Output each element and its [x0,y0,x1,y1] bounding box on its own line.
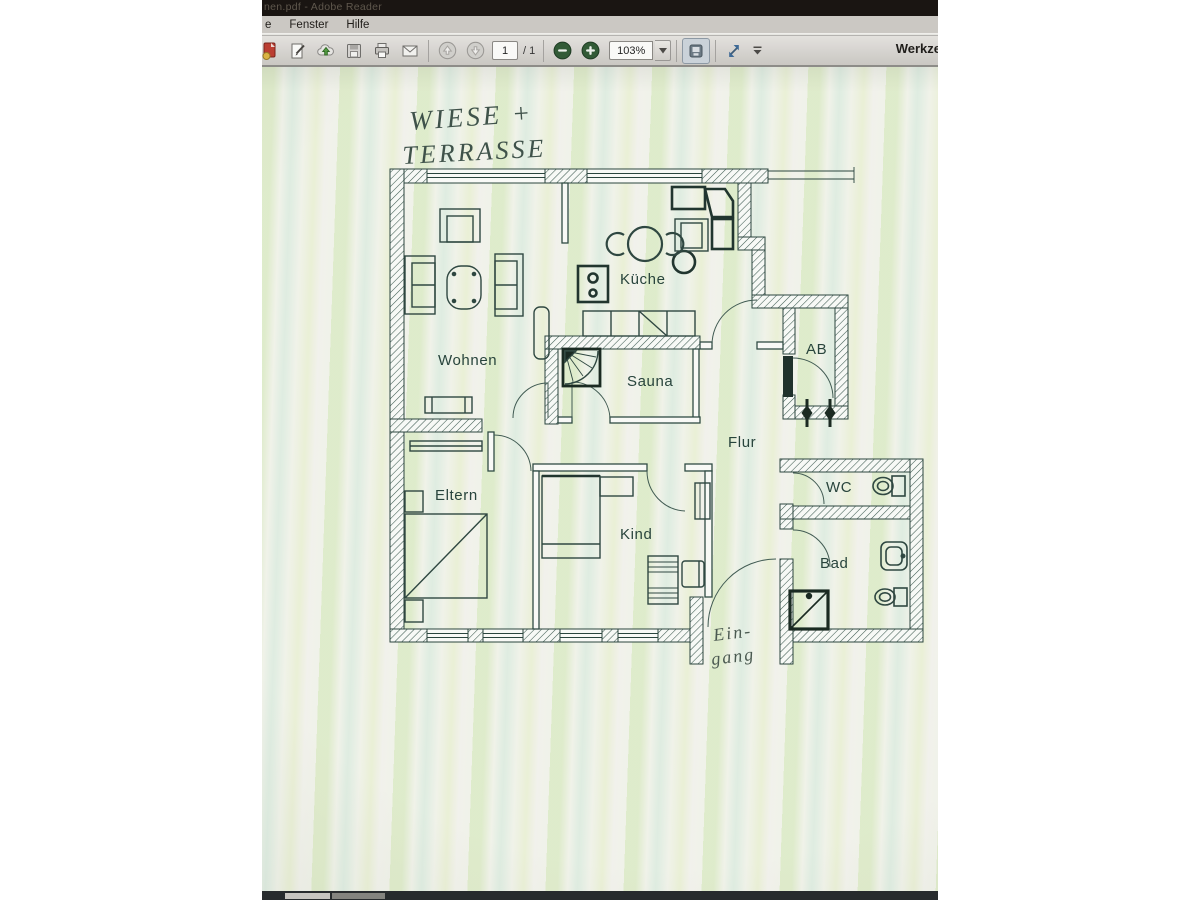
page-display-mode-icon [686,41,706,61]
page-number-input[interactable]: 1 [492,41,518,60]
crib [648,556,678,604]
coffee-table [447,266,481,309]
chair [682,561,704,587]
sign-document-icon [288,41,308,61]
ab-door-arc [793,358,833,398]
label-wohnen: Wohnen [438,352,497,369]
sign-button[interactable] [285,38,311,64]
previous-page-icon [437,40,458,61]
print-icon [372,41,392,61]
toolbar-divider [715,40,716,62]
zoom-dropdown-button[interactable] [655,40,671,61]
handwriting-entrance: Ein- gang [710,620,756,669]
bad-toilet [875,589,895,605]
label-ab: AB [806,341,827,358]
tools-panel-button[interactable]: Werkze [896,41,938,56]
kitchen-unit [672,187,705,209]
bad-toilet-tank [894,588,907,606]
kitchen-cabinet [712,219,733,249]
wc-toilet [873,478,893,495]
toolbar-divider [428,40,429,62]
zoom-out-icon [552,40,573,61]
menu-item-cut[interactable]: e [265,19,271,31]
eltern-door-arc [494,435,531,471]
email-button[interactable] [397,38,423,64]
zoom-in-button[interactable] [577,38,603,64]
label-kueche: Küche [620,271,666,288]
handwriting-line1: WIESE + [408,97,534,136]
print-button[interactable] [369,38,395,64]
label-kind: Kind [620,526,652,543]
handwriting-meadow-terrace: WIESE + TERRASSE [402,97,547,170]
ab-door-leaf [783,356,793,397]
next-page-button[interactable] [462,38,488,64]
sauna-shower [563,349,600,386]
entrance-door-arc [708,559,776,627]
page-total-label: / 1 [523,45,535,57]
save-icon [344,41,364,61]
menu-item-hilfe[interactable]: Hilfe [346,19,369,31]
save-button[interactable] [341,38,367,64]
floor-plan-drawing: WIESE + TERRASSE [262,67,938,891]
taskbar-item[interactable] [332,893,385,899]
label-wc: WC [826,479,852,496]
menu-bar: e Fenster Hilfe [262,16,938,34]
open-button[interactable] [262,38,283,64]
sauna-door-arc [572,382,610,420]
screenshot-photo: nen.pdf - Adobe Reader e Fenster Hilfe [0,0,1200,900]
chair-left [607,233,624,255]
sanitary-fixtures [790,476,907,629]
nightstand [405,491,423,512]
zoom-level-input[interactable]: 103% [609,41,653,60]
menu-item-fenster[interactable]: Fenster [289,19,328,31]
taskbar-item[interactable] [285,893,330,899]
previous-page-button[interactable] [434,38,460,64]
chevron-down-icon [659,48,667,54]
armchair [440,209,480,242]
label-bad: Bad [820,555,849,572]
pdf-document-canvas[interactable]: WIESE + TERRASSE [262,67,938,891]
next-page-icon [465,40,486,61]
wc-toilet-tank [892,476,905,496]
nightstand [405,600,423,622]
zoom-in-icon [580,40,601,61]
fit-window-icon [724,41,744,61]
wohnen-door-arc [513,383,548,418]
window-title: nen.pdf - Adobe Reader [264,1,382,13]
wc-door-arc [793,473,824,504]
upload-button[interactable] [313,38,339,64]
label-sauna: Sauna [627,373,673,390]
email-icon [400,41,420,61]
kueche-furniture [578,187,733,336]
toolbar-divider [543,40,544,62]
kind-door-arc [647,471,685,511]
handwriting-gang: gang [710,644,756,669]
kitchen-corner-unit [705,189,733,217]
label-flur: Flur [728,434,756,451]
label-eltern: Eltern [435,487,478,504]
handwriting-line2: TERRASSE [402,134,547,170]
eltern-furniture [405,441,487,622]
kueche-door-arc [712,300,757,345]
kind-bed [542,476,600,558]
toolbar-overflow-button[interactable] [749,38,765,64]
upload-cloud-icon [316,41,336,61]
wohnen-furniture [405,209,549,413]
screen-photo-area: nen.pdf - Adobe Reader e Fenster Hilfe [262,0,938,900]
zoom-out-button[interactable] [549,38,575,64]
kind-wardrobe [600,477,633,496]
page-display-mode-button[interactable] [682,38,710,64]
fit-window-button[interactable] [721,38,747,64]
toolbar: 1 / 1 103% [262,35,938,67]
window-titlebar: nen.pdf - Adobe Reader [262,0,938,16]
open-document-icon [262,41,280,61]
handwriting-ein: Ein- [711,620,753,645]
taskbar-sliver [262,891,938,900]
overflow-caret-icon [752,45,763,56]
kitchen-table-round [628,227,662,261]
toolbar-divider [676,40,677,62]
